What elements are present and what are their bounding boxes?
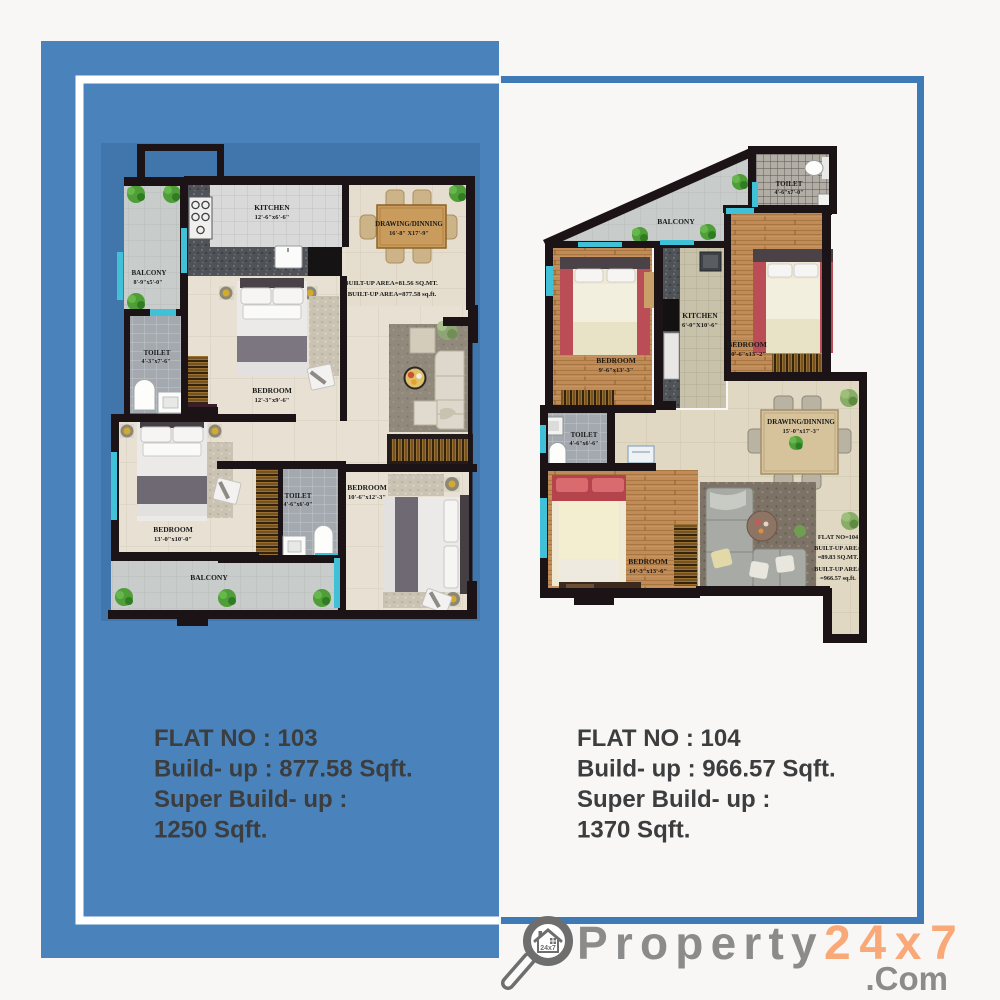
svg-text:BALCONY: BALCONY xyxy=(131,269,166,277)
svg-text:Super Build- up :: Super Build- up : xyxy=(577,786,770,813)
svg-text:KITCHEN: KITCHEN xyxy=(254,203,290,212)
svg-text:Build- up : 877.58 Sqft.: Build- up : 877.58 Sqft. xyxy=(154,756,413,783)
svg-text:DRAWING/DINNING: DRAWING/DINNING xyxy=(767,418,835,426)
svg-text:BEDROOM: BEDROOM xyxy=(628,557,668,566)
svg-text:12'-3"x9'-6": 12'-3"x9'-6" xyxy=(255,397,290,404)
svg-text:Property: Property xyxy=(577,917,824,969)
svg-text:DRAWING/DINNING: DRAWING/DINNING xyxy=(375,220,443,228)
svg-text:9'-6"x13'-3": 9'-6"x13'-3" xyxy=(599,367,634,374)
svg-text:BEDROOM: BEDROOM xyxy=(596,356,636,365)
svg-text:4'-3"x7'-6": 4'-3"x7'-6" xyxy=(142,359,171,365)
svg-text:BEDROOM: BEDROOM xyxy=(252,386,292,395)
svg-text:BALCONY: BALCONY xyxy=(190,573,228,582)
svg-text:FLAT NO : 103: FLAT NO : 103 xyxy=(154,725,318,752)
svg-text:8'-9"x5'-0": 8'-9"x5'-0" xyxy=(134,280,163,286)
svg-text:.Com: .Com xyxy=(866,960,949,997)
svg-text:BEDROOM: BEDROOM xyxy=(153,525,193,534)
svg-text:KITCHEN: KITCHEN xyxy=(682,311,718,320)
svg-text:BUILT-UP AREA: BUILT-UP AREA xyxy=(814,545,862,552)
svg-text:1250 Sqft.: 1250 Sqft. xyxy=(154,817,267,844)
svg-text:TOILET: TOILET xyxy=(285,492,312,500)
svg-text:BUILT-UP AREA: BUILT-UP AREA xyxy=(814,566,862,573)
svg-text:BALCONY: BALCONY xyxy=(657,217,695,226)
svg-text:15'-0"x17'-3": 15'-0"x17'-3" xyxy=(783,428,820,435)
svg-text:10'-6"x12'-3": 10'-6"x12'-3" xyxy=(348,494,386,501)
svg-text:=89.83 SQ.MT.: =89.83 SQ.MT. xyxy=(818,554,859,561)
svg-text:1370 Sqft.: 1370 Sqft. xyxy=(577,817,690,844)
svg-text:BUILT-UP AREA=81.56 SQ.MT.: BUILT-UP AREA=81.56 SQ.MT. xyxy=(344,280,438,287)
svg-text:Super Build- up :: Super Build- up : xyxy=(154,786,347,813)
svg-text:4'-6"x6'-6": 4'-6"x6'-6" xyxy=(570,441,599,447)
svg-text:TOILET: TOILET xyxy=(776,180,803,188)
svg-text:13'-0"x10'-0": 13'-0"x10'-0" xyxy=(154,536,192,543)
svg-text:4'-6"x6'-0": 4'-6"x6'-0" xyxy=(284,502,313,508)
svg-text:FLAT NO=104: FLAT NO=104 xyxy=(818,534,859,541)
svg-text:TOILET: TOILET xyxy=(571,431,598,439)
svg-text:4'-6"x7'-0": 4'-6"x7'-0" xyxy=(775,190,804,196)
svg-text:16'-8" X17'-9": 16'-8" X17'-9" xyxy=(389,230,429,237)
svg-text:BEDROOM: BEDROOM xyxy=(347,483,387,492)
svg-text:10'-6"x13'-2": 10'-6"x13'-2" xyxy=(728,351,766,358)
svg-text:Build- up : 966.57 Sqft.: Build- up : 966.57 Sqft. xyxy=(577,756,836,783)
svg-text:BEDROOM: BEDROOM xyxy=(727,340,767,349)
svg-text:FLAT NO : 104: FLAT NO : 104 xyxy=(577,725,741,752)
svg-text:6'-0"X10'-6": 6'-0"X10'-6" xyxy=(682,322,718,329)
svg-text:14'-3"x13'-6": 14'-3"x13'-6" xyxy=(629,568,667,575)
svg-text:BUILT-UP AREA=877.58 sq.ft.: BUILT-UP AREA=877.58 sq.ft. xyxy=(348,291,437,298)
svg-text:12'-6"x6'-6": 12'-6"x6'-6" xyxy=(255,214,290,221)
svg-text:24x7: 24x7 xyxy=(540,945,556,952)
svg-text:=966.57 sq.ft.: =966.57 sq.ft. xyxy=(820,575,856,582)
svg-text:TOILET: TOILET xyxy=(144,349,171,357)
